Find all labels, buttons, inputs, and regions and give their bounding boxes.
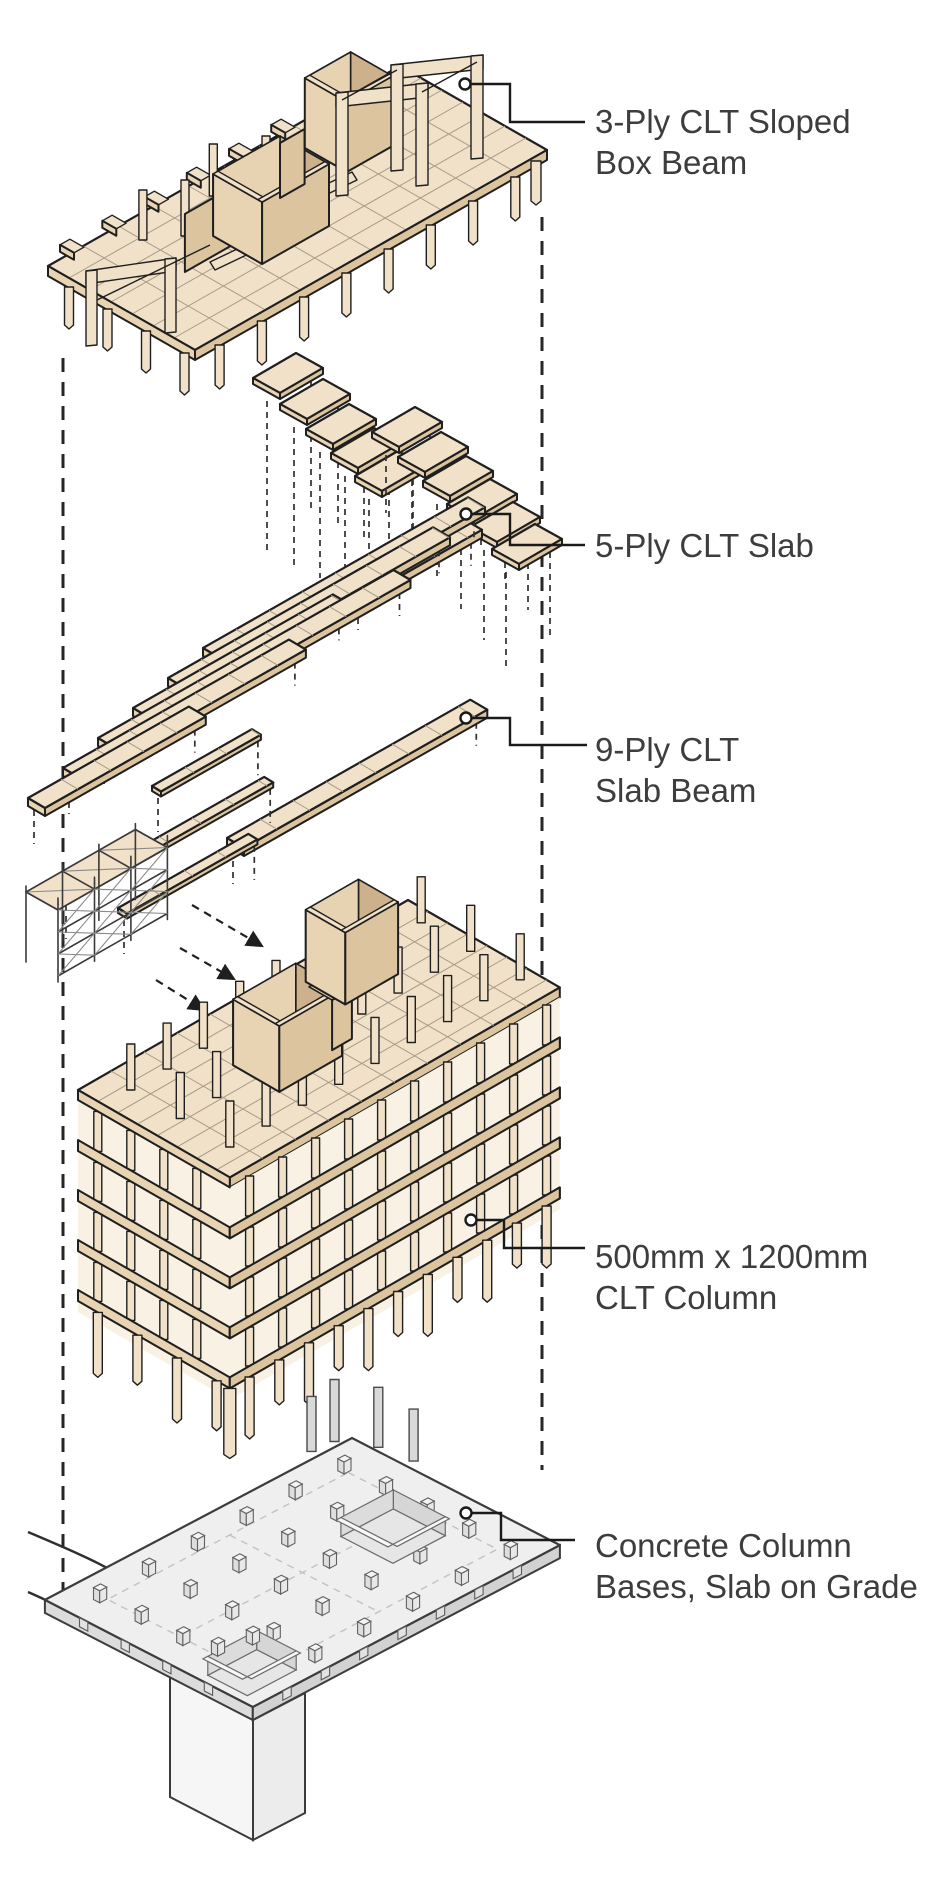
annotations: 3-Ply CLT Sloped Box Beam 5-Ply CLT Slab… bbox=[460, 79, 918, 1606]
label-text: CLT Column bbox=[595, 1279, 777, 1316]
clt-assembly-diagram: 3-Ply CLT Sloped Box Beam 5-Ply CLT Slab… bbox=[0, 0, 932, 1900]
roof-level-3ply-box-beams bbox=[48, 52, 547, 395]
leader-dot bbox=[466, 1215, 477, 1226]
label-text: Box Beam bbox=[595, 144, 747, 181]
exploded-diagram-page: 3-Ply CLT Sloped Box Beam 5-Ply CLT Slab… bbox=[0, 0, 932, 1900]
label-text: 9-Ply CLT bbox=[595, 731, 739, 768]
leader-dot bbox=[461, 713, 472, 724]
leader-dot bbox=[460, 79, 471, 90]
label-9ply-slab-beam: 9-Ply CLT Slab Beam bbox=[461, 713, 757, 810]
label-text: 500mm x 1200mm bbox=[595, 1238, 868, 1275]
label-text: Concrete Column bbox=[595, 1527, 852, 1564]
label-text: 3-Ply CLT Sloped bbox=[595, 103, 851, 140]
label-text: 5-Ply CLT Slab bbox=[595, 527, 814, 564]
concrete-foundation bbox=[28, 1380, 560, 1841]
label-clt-column: 500mm x 1200mm CLT Column bbox=[466, 1215, 869, 1317]
label-text: Bases, Slab on Grade bbox=[595, 1568, 918, 1605]
prefab-lattice-module bbox=[26, 824, 167, 983]
leader-dot bbox=[461, 509, 472, 520]
clt-column-structure bbox=[78, 877, 560, 1459]
leader-dot bbox=[461, 1508, 472, 1519]
label-text: Slab Beam bbox=[595, 772, 756, 809]
leader-line bbox=[471, 718, 587, 745]
